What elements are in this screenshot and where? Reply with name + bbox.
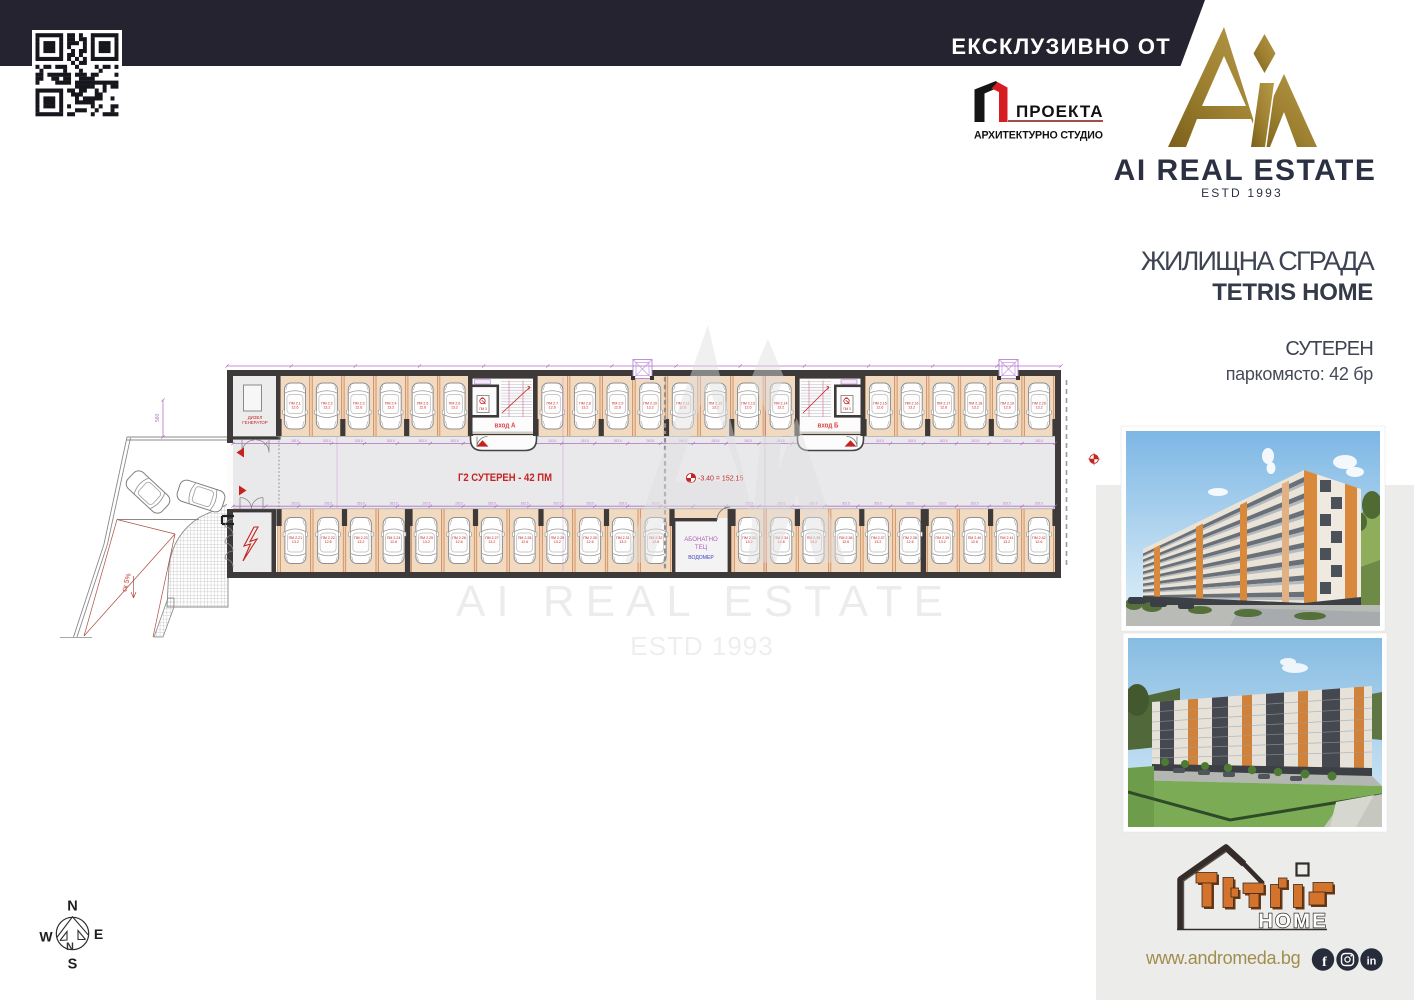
svg-text:263.5: 263.5 <box>874 502 882 506</box>
svg-text:N: N <box>67 899 77 915</box>
svg-text:263.5: 263.5 <box>323 439 331 443</box>
svg-text:АБОНАТНО: АБОНАТНО <box>684 536 718 543</box>
svg-text:263.5: 263.5 <box>521 502 529 506</box>
svg-text:ТЕЦ: ТЕЦ <box>695 544 708 551</box>
svg-text:263.5: 263.5 <box>908 439 916 443</box>
svg-text:560: 560 <box>155 413 161 422</box>
svg-text:263.5: 263.5 <box>711 439 719 443</box>
svg-text:вход А: вход А <box>495 421 516 430</box>
svg-text:вход Б: вход Б <box>818 421 840 430</box>
svg-text:263.5: 263.5 <box>357 502 365 506</box>
svg-text:263.5: 263.5 <box>1003 502 1011 506</box>
svg-text:263.5: 263.5 <box>876 439 884 443</box>
svg-text:263.5: 263.5 <box>619 502 627 506</box>
svg-text:263.5: 263.5 <box>744 439 752 443</box>
svg-text:263.5: 263.5 <box>324 502 332 506</box>
svg-text:263.5: 263.5 <box>938 502 946 506</box>
svg-text:263.5: 263.5 <box>553 502 561 506</box>
svg-text:W: W <box>39 929 53 945</box>
svg-text:263.5: 263.5 <box>548 439 556 443</box>
svg-text:ПМ 3: ПМ 3 <box>479 407 487 411</box>
svg-text:263.5: 263.5 <box>940 439 948 443</box>
svg-text:263.5: 263.5 <box>646 439 654 443</box>
svg-text:Г2 СУТЕРЕН - 42 ПМ: Г2 СУТЕРЕН - 42 ПМ <box>458 472 552 484</box>
svg-text:263.5: 263.5 <box>971 439 979 443</box>
svg-text:263.5: 263.5 <box>455 502 463 506</box>
svg-text:263.5: 263.5 <box>1003 439 1011 443</box>
svg-text:263.5: 263.5 <box>488 502 496 506</box>
svg-text:263.5: 263.5 <box>390 502 398 506</box>
svg-text:263.5: 263.5 <box>355 439 363 443</box>
svg-text:AI REAL ESTATE: AI REAL ESTATE <box>456 577 954 626</box>
svg-text:263.5: 263.5 <box>906 502 914 506</box>
svg-text:263.5: 263.5 <box>451 439 459 443</box>
svg-text:N: N <box>66 941 74 953</box>
svg-text:263.5: 263.5 <box>971 502 979 506</box>
svg-text:263.5: 263.5 <box>581 439 589 443</box>
svg-text:263.5: 263.5 <box>422 502 430 506</box>
svg-text:ESTD 1993: ESTD 1993 <box>630 631 773 661</box>
svg-text:263.5: 263.5 <box>842 502 850 506</box>
svg-text:ск 5%: ск 5% <box>121 573 133 593</box>
svg-text:ПМ 3: ПМ 3 <box>843 407 851 411</box>
svg-text:263.5: 263.5 <box>614 439 622 443</box>
svg-text:263.5: 263.5 <box>291 502 299 506</box>
svg-text:263.5: 263.5 <box>1035 502 1043 506</box>
svg-text:263.5: 263.5 <box>419 439 427 443</box>
svg-text:263.5: 263.5 <box>387 439 395 443</box>
svg-text:263.5: 263.5 <box>291 439 299 443</box>
svg-text:S: S <box>68 957 78 973</box>
svg-text:263.5: 263.5 <box>1035 439 1043 443</box>
svg-text:ГЕНЕРАТОР: ГЕНЕРАТОР <box>242 420 268 425</box>
svg-text:ВОДОМЕР: ВОДОМЕР <box>688 555 714 561</box>
svg-text:E: E <box>94 926 103 942</box>
svg-text:263.5: 263.5 <box>586 502 594 506</box>
